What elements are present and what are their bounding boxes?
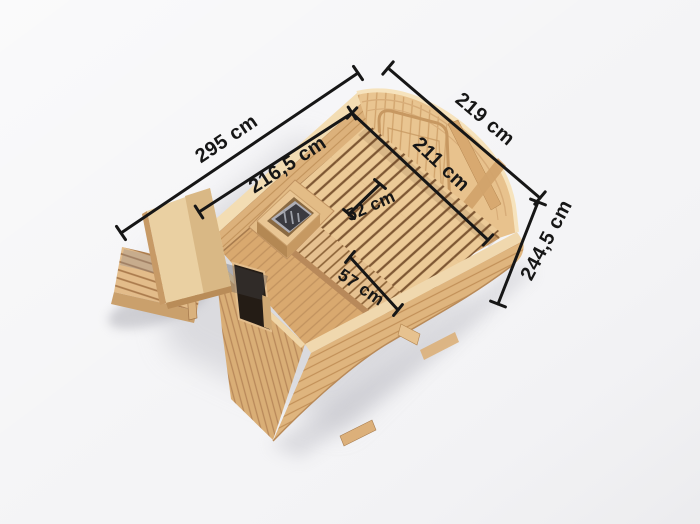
product-screenshot: 295 cm 219 cm 244,5 cm 216,5 cm 211 cm 5… <box>0 0 700 524</box>
sauna-dimension-diagram: 295 cm 219 cm 244,5 cm 216,5 cm 211 cm 5… <box>0 0 700 524</box>
